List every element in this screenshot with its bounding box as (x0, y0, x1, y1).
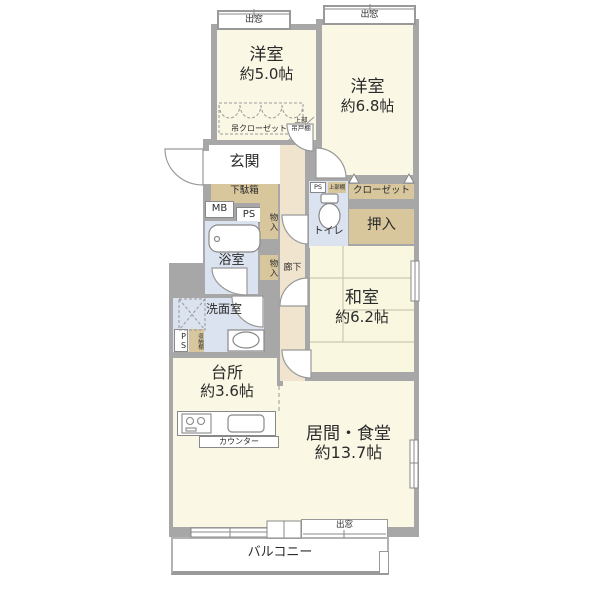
shoe-cabinet-label: 下駄箱 (211, 186, 278, 197)
washroom-label: 洗面室 (186, 303, 262, 316)
room-size: 約3.6帖 (200, 382, 254, 400)
upper-cupboard-label: 上部 吊戸棚 (286, 116, 316, 132)
kitchen-counter (177, 411, 276, 436)
floor-plan: 出窓 出窓 洋室 約5.0帖 洋室 約6.8帖 吊クローゼット 上部 吊戸棚 玄… (0, 0, 600, 600)
room-size: 約6.2帖 (335, 308, 389, 326)
room-size: 約5.0帖 (240, 65, 294, 83)
room-name: 洋室 (250, 45, 284, 65)
room-size: 約6.8帖 (341, 97, 395, 115)
bay-window-label-1: 出窓 (217, 15, 291, 25)
meter-box-label: MB (205, 203, 234, 214)
closet-label: クローゼット (349, 186, 414, 197)
pipe-space-2-label: PS (175, 331, 187, 350)
room-living-floor-left (173, 448, 283, 527)
room-name: 居間・食堂 (306, 424, 391, 444)
storage-1-label: 物入 (261, 207, 277, 237)
room-name: 台所 (211, 363, 243, 382)
storage-shelf-label: 収納棚 (190, 331, 203, 351)
balcony-label: バルコニー (171, 546, 389, 561)
storage-2-label: 物入 (261, 257, 277, 279)
room-label-japanese: 和室 約6.2帖 (313, 289, 411, 327)
front-door-swing (165, 149, 203, 185)
upper-shelf-label: 上部棚 (328, 185, 346, 191)
room-label-western1: 洋室 約5.0帖 (217, 46, 316, 84)
room-label-western2: 洋室 約6.8帖 (322, 78, 413, 116)
toilet-label: トイレ (309, 226, 348, 237)
room-name: 洋室 (351, 77, 385, 97)
room-name: 和室 (345, 288, 379, 308)
bathroom-label: 浴室 (205, 254, 258, 269)
pipe-space-3-label: PS (310, 184, 326, 191)
room-size: 約13.7帖 (315, 443, 383, 462)
room-label-kitchen: 台所 約3.6帖 (177, 364, 277, 400)
bay-window-label-3: 出窓 (301, 521, 388, 531)
oshiire-label: 押入 (349, 217, 414, 233)
counter-label: カウンター (199, 438, 279, 447)
hallway-label: 廊下 (279, 263, 306, 273)
pipe-space-1-label: PS (236, 209, 262, 220)
bay-window-label-2: 出窓 (323, 10, 416, 20)
room-label-living: 居間・食堂 約13.7帖 (283, 425, 414, 463)
entrance-label: 玄関 (209, 153, 280, 170)
